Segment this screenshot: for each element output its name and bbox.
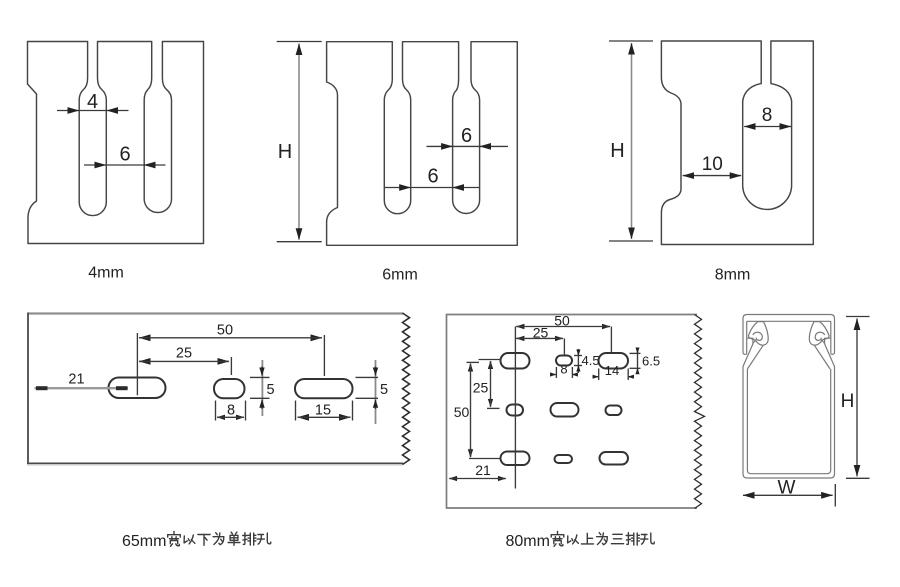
svg-text:6: 6 xyxy=(119,144,130,166)
svg-text:25: 25 xyxy=(473,380,489,396)
svg-text:50: 50 xyxy=(454,404,470,420)
svg-text:15: 15 xyxy=(315,403,331,419)
svg-text:80mm: 80mm xyxy=(506,533,550,550)
svg-text:5: 5 xyxy=(267,382,275,398)
svg-text:21: 21 xyxy=(68,372,84,388)
svg-text:4.5: 4.5 xyxy=(582,353,600,368)
svg-text:6.5: 6.5 xyxy=(642,354,660,369)
svg-text:6mm: 6mm xyxy=(382,267,418,284)
svg-text:65mm: 65mm xyxy=(122,533,166,550)
svg-text:50: 50 xyxy=(554,313,570,329)
svg-text:6: 6 xyxy=(461,125,472,147)
svg-text:25: 25 xyxy=(176,346,192,362)
svg-text:25: 25 xyxy=(533,324,549,340)
svg-text:14: 14 xyxy=(605,363,619,378)
svg-text:21: 21 xyxy=(475,462,491,478)
svg-text:H: H xyxy=(610,140,624,162)
svg-text:H: H xyxy=(841,391,855,412)
svg-text:W: W xyxy=(778,478,796,499)
svg-text:6: 6 xyxy=(427,166,438,188)
svg-text:4: 4 xyxy=(87,91,98,113)
svg-text:50: 50 xyxy=(217,323,233,339)
svg-text:8mm: 8mm xyxy=(715,267,751,284)
svg-text:8: 8 xyxy=(762,105,773,126)
svg-text:H: H xyxy=(278,141,292,163)
svg-text:8: 8 xyxy=(560,362,567,377)
svg-text:4mm: 4mm xyxy=(88,265,124,282)
svg-text:8: 8 xyxy=(227,403,235,419)
svg-text:5: 5 xyxy=(380,382,388,398)
svg-text:10: 10 xyxy=(702,154,723,175)
